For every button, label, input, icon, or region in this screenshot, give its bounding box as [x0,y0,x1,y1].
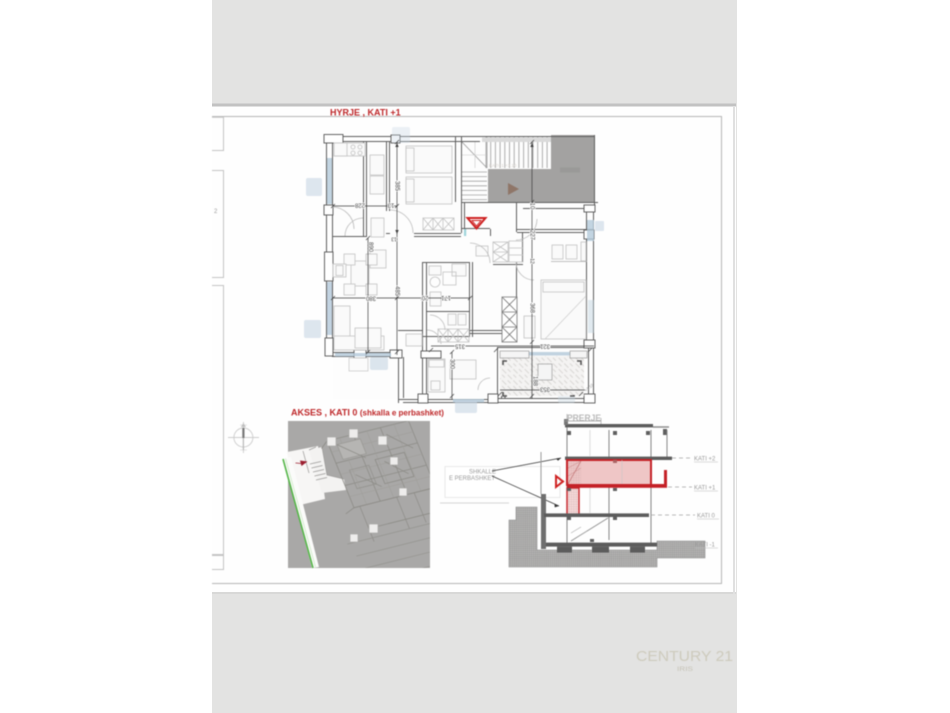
svg-text:13: 13 [391,236,397,242]
svg-text:KATI -1: KATI -1 [695,543,716,549]
svg-text:KATI +1: KATI +1 [694,486,716,492]
svg-text:171: 171 [440,294,451,300]
svg-text:KATI 0: KATI 0 [697,514,716,520]
svg-text:485: 485 [394,286,400,297]
svg-text:PRERJE: PRERJE [567,413,601,424]
svg-text:KATI +2: KATI +2 [694,457,716,463]
svg-text:E PERBASHKET: E PERBASHKET [449,476,495,482]
svg-text:315: 315 [454,343,465,349]
svg-text:890: 890 [367,242,373,253]
svg-text:10: 10 [529,203,535,210]
svg-text:KATI+1 +3.10: KATI+1 +3.10 [489,163,517,168]
svg-text:227: 227 [529,230,535,241]
svg-text:12: 12 [529,258,535,264]
svg-text:13: 13 [387,202,394,208]
svg-text:228: 228 [354,202,365,208]
svg-text:321: 321 [539,343,550,349]
svg-text:AKSES , KATI 0 (shkalla e perb: AKSES , KATI 0 (shkalla e perbashket) [291,408,444,418]
svg-text:HYRJE , KATI +1: HYRJE , KATI +1 [330,108,401,118]
svg-text:380: 380 [365,295,376,301]
svg-text:353: 353 [539,386,550,392]
svg-text:20: 20 [421,294,428,300]
svg-text:SHKALLE: SHKALLE [469,470,496,476]
svg-text:385: 385 [394,181,400,192]
svg-text:188: 188 [532,376,538,387]
svg-text:300: 300 [449,359,455,370]
svg-text:IRIS: IRIS [677,666,694,673]
svg-text:368: 368 [529,303,535,314]
svg-text:CENTURY 21: CENTURY 21 [636,648,733,665]
